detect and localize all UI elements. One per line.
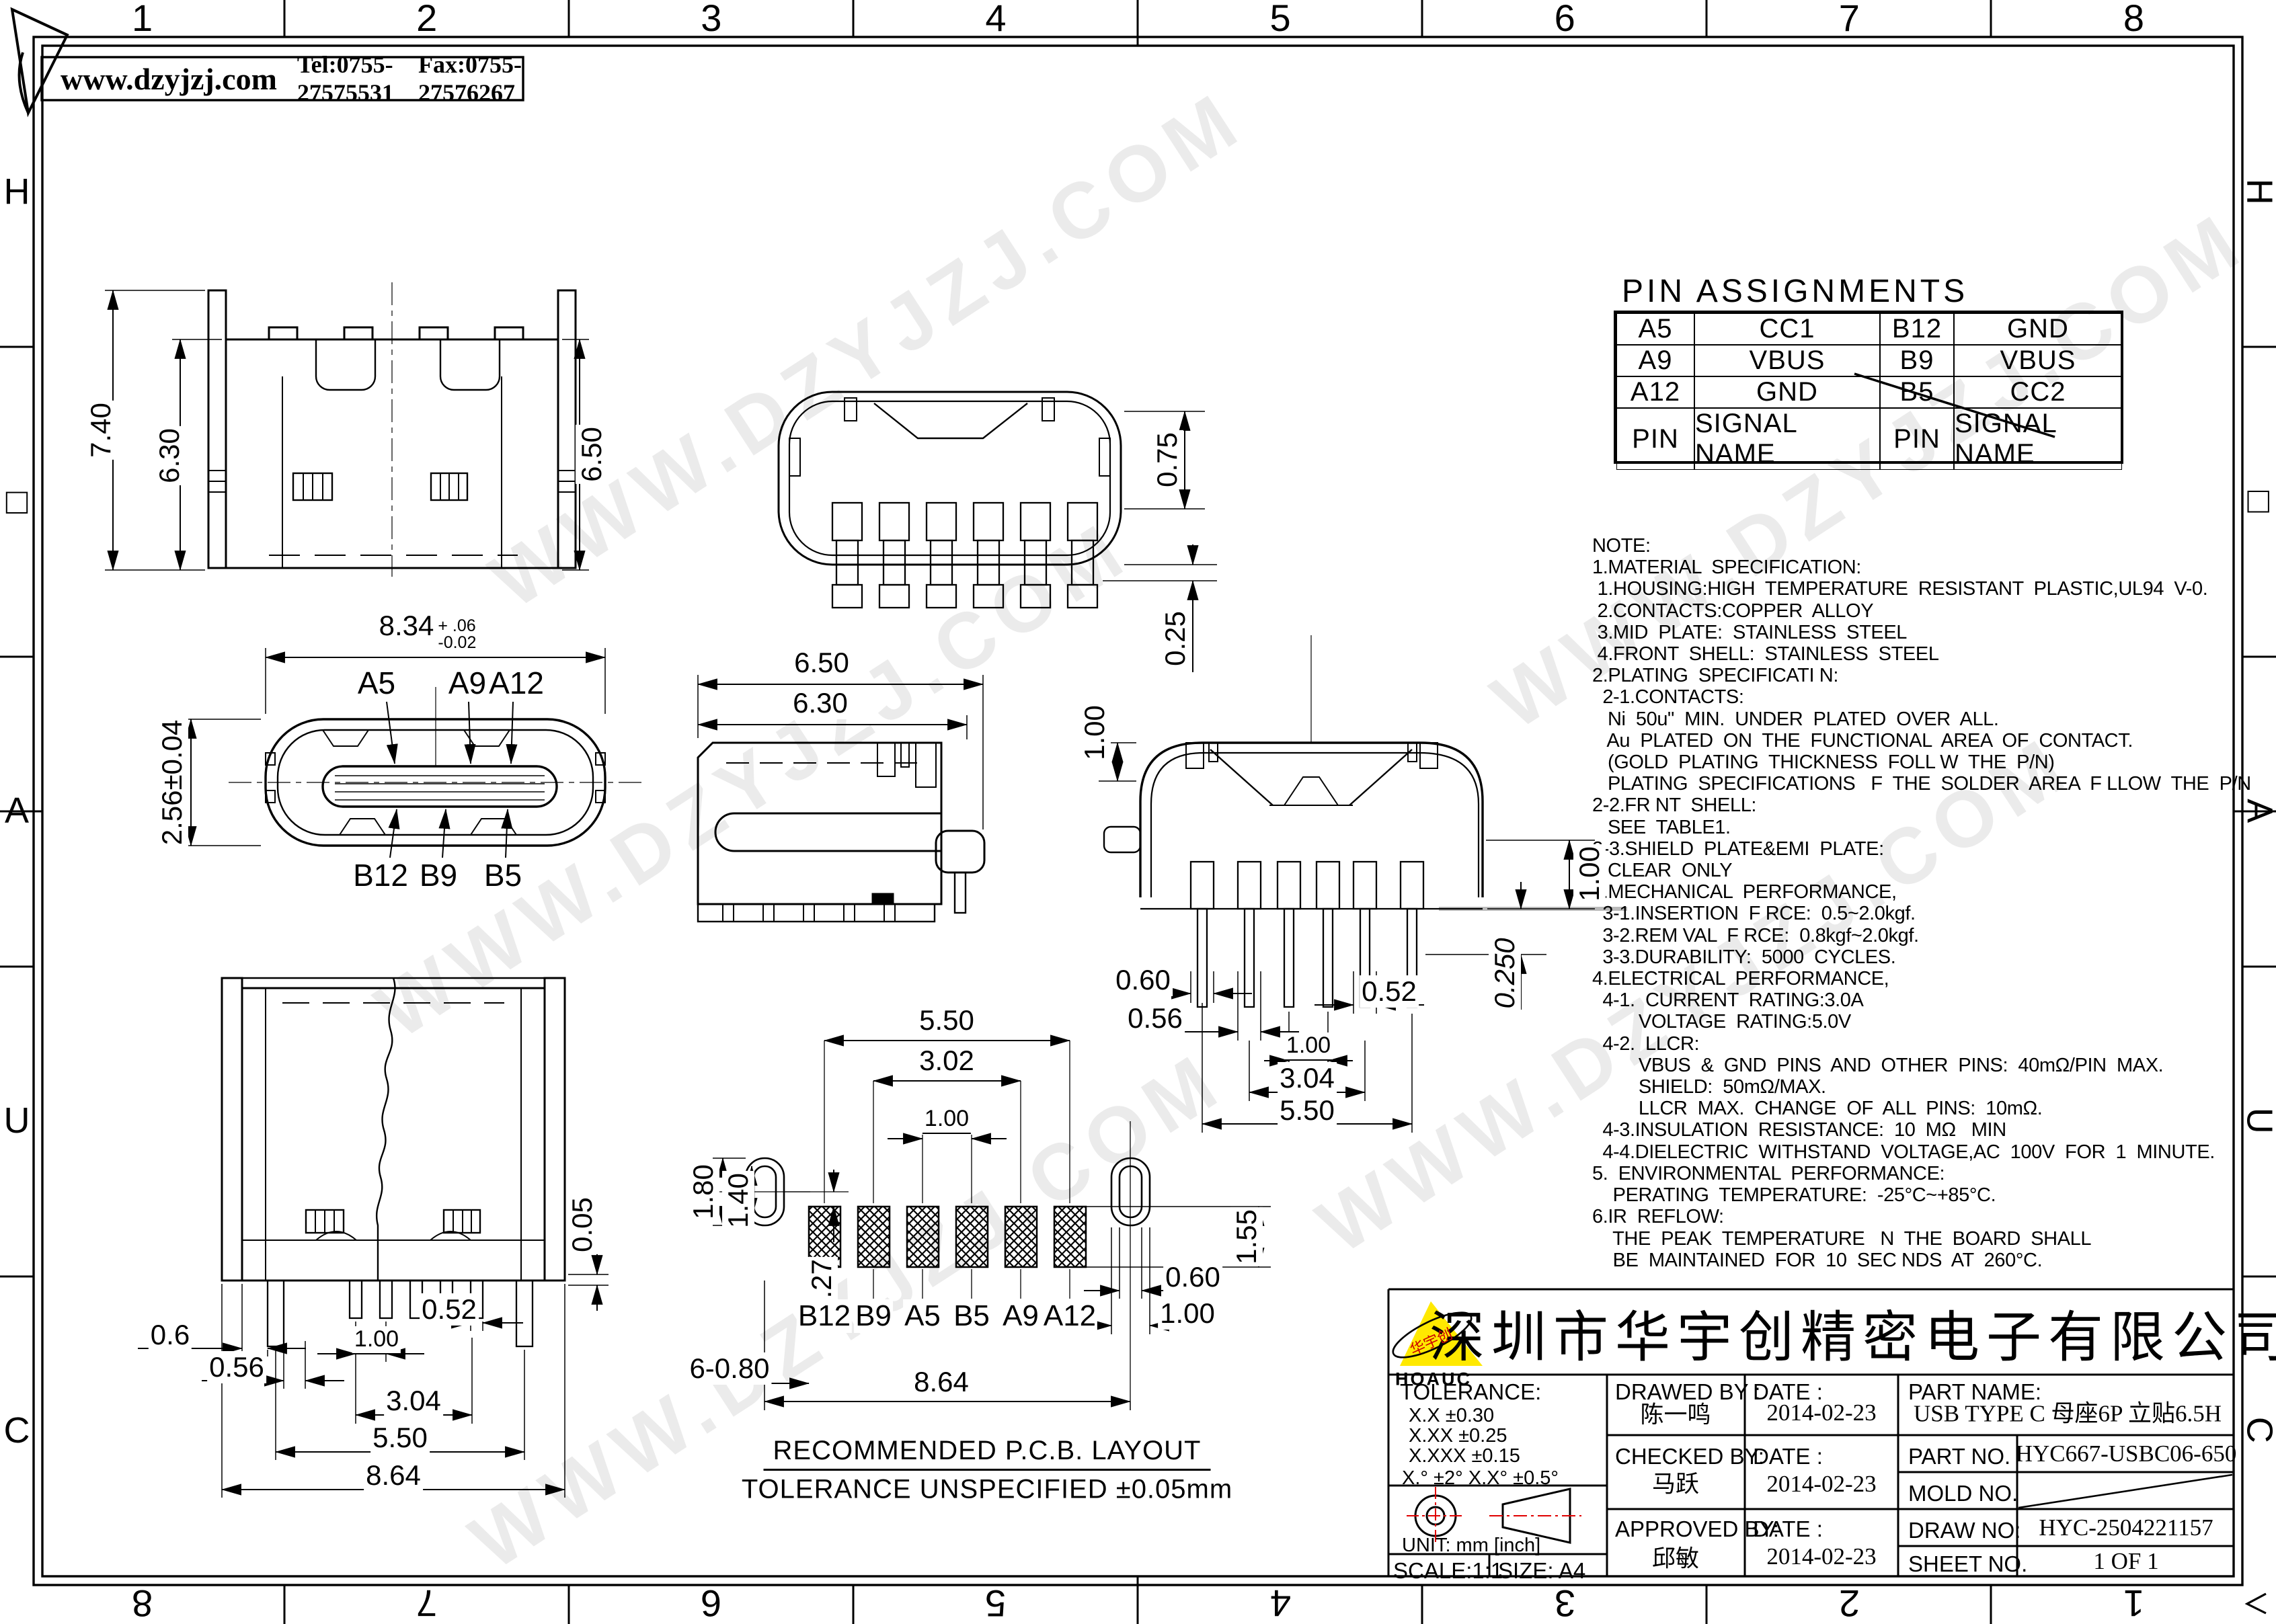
note-line: 1.HOUSING:HIGH TEMPERATURE RESISTANT PLA…	[1592, 578, 2251, 600]
pin-label-a9: A9	[448, 665, 486, 701]
zone-letter: A	[0, 656, 34, 966]
tolerance-label: TOLERANCE:	[1400, 1379, 1541, 1405]
pin-label-b12: B12	[353, 857, 408, 893]
tolerance-angles: X.° ±2° X.X° ±0.5°	[1402, 1467, 1559, 1490]
pin-table-cell: B5	[1880, 376, 1954, 408]
rear-view-drawing	[1099, 635, 1627, 1133]
pin-label-a12: A12	[489, 665, 544, 701]
note-line: 2.CONTACTS:COPPER ALLOY	[1592, 600, 2251, 622]
note-line: SHIELD: 50mΩ/MAX.	[1592, 1076, 2251, 1098]
dim-rear-0-60: 0.60	[1113, 964, 1173, 996]
dim-side-6-30: 6.30	[791, 687, 850, 719]
note-line: PLATING SPECIFICATIONS F THE SOLDER AREA…	[1592, 773, 2251, 795]
checked-date: 2014-02-23	[1766, 1471, 1876, 1498]
pin-table-cell: A9	[1616, 345, 1694, 376]
size-label: SIZE: A4	[1498, 1558, 1585, 1584]
ruler-number: 4	[1138, 1586, 1423, 1621]
dim-6-30: 6.30	[153, 426, 186, 485]
website: www.dzyjzj.com	[61, 61, 277, 97]
note-line: 5. ENVIRONMENTAL PERFORMANCE:	[1592, 1163, 2251, 1184]
ruler-top: 12345678	[0, 0, 2276, 35]
dim-relev-0-6: 0.6	[149, 1319, 192, 1351]
note-line: 4.FRONT SHELL: STAINLESS STEEL	[1592, 643, 2251, 665]
pin-assignments-table: A5CC1B12GNDA9VBUSB9VBUSA12GNDB5CC2PINSIG…	[1614, 311, 2123, 464]
note-line: 4-2. LLCR:	[1592, 1033, 2251, 1055]
note-line: Ni 50u" MIN. UNDER PLATED OVER ALL.	[1592, 708, 2251, 730]
dim-rear-0-52: 0.52	[1360, 975, 1419, 1008]
ruler-number: 2	[284, 0, 569, 35]
note-line: BE MAINTAINED FOR 10 SEC NDS AT 260°C.	[1592, 1250, 2251, 1271]
part-no-label: PART NO.	[1908, 1444, 2010, 1469]
zone-letter: H	[2105, 175, 2276, 208]
pcb-caption-tolerance: TOLERANCE UNSPECIFIED ±0.05mm	[742, 1475, 1232, 1505]
dim-6-50: 6.50	[576, 425, 608, 484]
zone-letter: □	[0, 347, 34, 657]
pin-table-row: PINSIGNAL NAMEPINSIGNAL NAME	[1616, 408, 2122, 470]
dim-pcb-1-00b: 1.00	[1158, 1297, 1217, 1330]
pin-label-b5: B5	[484, 857, 522, 893]
note-line: 2-2.FR NT SHELL:	[1592, 795, 2251, 816]
dim-relev-0-56: 0.56	[207, 1351, 266, 1383]
header-contact-bar: www.dzyjzj.com Tel:0755-27575531 Fax:075…	[42, 57, 523, 100]
pin-label-a5: A5	[358, 665, 395, 701]
pin-table-cell: PIN	[1880, 408, 1954, 470]
pin-table-cell: B12	[1880, 313, 1954, 345]
scale-label: SCALE:1:1	[1393, 1558, 1503, 1584]
note-line: 2-1.CONTACTS:	[1592, 686, 2251, 708]
drawed-by-name: 陈一鸣	[1640, 1396, 1711, 1430]
draw-no-label: DRAW NO:	[1908, 1518, 2020, 1543]
dim-relev-1-00: 1.00	[352, 1326, 401, 1354]
note-line: VBUS & GND PINS AND OTHER PINS: 40mΩ/PIN…	[1592, 1055, 2251, 1076]
ruler-number: 7	[284, 1586, 569, 1621]
pad-label-b5: B5	[952, 1299, 991, 1333]
notes-block: NOTE:1.MATERIAL SPECIFICATION: 1.HOUSING…	[1592, 535, 2251, 1271]
ruler-number: 3	[569, 0, 853, 35]
ruler-left: H□AUC	[0, 37, 34, 1585]
ruler-number: 1	[1992, 1586, 2276, 1621]
dim-rear-0-56: 0.56	[1126, 1002, 1185, 1034]
note-line: PERATING TEMPERATURE: -25°C~+85°C.	[1592, 1184, 2251, 1206]
dim-pcb-3-02: 3.02	[917, 1045, 976, 1077]
dim-rear-1-00-top: 1.00	[1078, 703, 1111, 762]
face-view-drawing	[182, 648, 642, 858]
note-line: NOTE:	[1592, 535, 2251, 557]
dim-2-56: 2.56±0.04	[156, 718, 188, 848]
unit-label: UNIT: mm [inch]	[1402, 1535, 1540, 1557]
dim-pcb-1-40: 1.40	[722, 1171, 754, 1230]
pad-label-a9: A9	[1001, 1299, 1040, 1333]
ruler-number: 1	[0, 0, 284, 35]
checked-by-name: 马跃	[1652, 1465, 1699, 1500]
pad-label-a5: A5	[903, 1299, 942, 1333]
mold-no-label: MOLD NO.	[1908, 1481, 2018, 1506]
note-line: 4.ELECTRICAL PERFORMANCE,	[1592, 968, 2251, 989]
zone-letter: C	[0, 1275, 34, 1585]
pin-table-cell: SIGNAL NAME	[1694, 408, 1880, 470]
pin-table-cell: VBUS	[1954, 345, 2122, 376]
note-line: 2-3.SHIELD PLATE&EMI PLATE:	[1592, 838, 2251, 860]
pin-assignments-title: PIN ASSIGNMENTS	[1622, 273, 1968, 310]
dim-pcb-8-64: 8.64	[912, 1366, 971, 1398]
pin-table-cell: GND	[1694, 376, 1880, 408]
zone-letter: U	[0, 966, 34, 1276]
dim-pcb-1-00: 1.00	[923, 1106, 971, 1134]
dim-rear-3-04: 3.04	[1278, 1062, 1337, 1094]
sheet-no-value: 1 OF 1	[2093, 1548, 2158, 1575]
phone: Tel:0755-27575531	[297, 50, 398, 107]
dim-rear-5-50: 5.50	[1278, 1094, 1337, 1127]
note-line: CLEAR ONLY	[1592, 860, 2251, 881]
note-line: 1.MATERIAL SPECIFICATION:	[1592, 557, 2251, 578]
rear-elevation-drawing	[138, 978, 609, 1498]
dim-pcb-5-50: 5.50	[917, 1004, 976, 1037]
tolerance-row3: X.XXX ±0.15	[1409, 1445, 1520, 1467]
note-line: LLCR MAX. CHANGE OF ALL PINS: 10mΩ.	[1592, 1098, 2251, 1119]
note-line: 4-3.INSULATION RESISTANCE: 10 MΩ MIN	[1592, 1119, 2251, 1141]
pin-table-cell: GND	[1954, 313, 2122, 345]
part-no-value: HYC667-USBC06-650	[2016, 1440, 2237, 1467]
dim-relev-0-05: 0.05	[566, 1195, 598, 1254]
dim-relev-0-52: 0.52	[420, 1293, 479, 1326]
dim-0-25: 0.25	[1159, 609, 1191, 668]
pin-table-row: A9VBUSB9VBUS	[1616, 345, 2122, 376]
dim-relev-8-64: 8.64	[364, 1459, 423, 1492]
pad-label-b12: B12	[797, 1299, 852, 1333]
ruler-number: 3	[1423, 1586, 1707, 1621]
pin-table-cell: VBUS	[1694, 345, 1880, 376]
part-name-value: USB TYPE C 母座6P 立贴6.5H	[1914, 1395, 2222, 1429]
pin-table-cell: B9	[1880, 345, 1954, 376]
dim-rear-1-00-right: 1.00	[1573, 844, 1606, 903]
ruler-number: 7	[1707, 0, 1992, 35]
pin-table-cell: SIGNAL NAME	[1954, 408, 2122, 470]
ruler-number: 5	[1138, 0, 1423, 35]
note-line: (GOLD PLATING THICKNESS FOLL W THE P/N)	[1592, 752, 2251, 773]
pin-table-cell: CC1	[1694, 313, 1880, 345]
approved-by-name: 邱敏	[1652, 1540, 1699, 1574]
note-line: 2.PLATING SPECIFICATI N:	[1592, 665, 2251, 686]
note-line: 3-1.INSERTION F RCE: 0.5~2.0kgf.	[1592, 903, 2251, 924]
pin-table-cell: CC2	[1954, 376, 2122, 408]
ruler-bottom: 87654321	[0, 1586, 2276, 1621]
ruler-number: 8	[1992, 0, 2276, 35]
note-line: 3.MECHANICAL PERFORMANCE,	[1592, 881, 2251, 903]
pcb-layout-drawing	[699, 1041, 1271, 1410]
dim-7-40: 7.40	[85, 401, 117, 460]
ruler-number: 4	[853, 0, 1138, 35]
ruler-number: 6	[569, 1586, 853, 1621]
sheet-no-label: SHEET NO.	[1908, 1551, 2027, 1577]
zone-letter: H	[0, 37, 34, 347]
tolerance-row2: X.XX ±0.25	[1409, 1425, 1507, 1447]
pin-table-cell: A12	[1616, 376, 1694, 408]
dim-pcb-0-60: 0.60	[1163, 1261, 1222, 1293]
ruler-number: 8	[0, 1586, 284, 1621]
dim-pcb-1-80: 1.80	[687, 1162, 719, 1221]
dim-side-6-50: 6.50	[792, 647, 851, 679]
ruler-number: 6	[1423, 0, 1707, 35]
note-line: THE PEAK TEMPERATURE N THE BOARD SHALL	[1592, 1228, 2251, 1250]
note-line: 4-1. CURRENT RATING:3.0A	[1592, 989, 2251, 1011]
fax: Fax:0755-27576267	[418, 50, 523, 107]
approved-date: 2014-02-23	[1766, 1543, 1876, 1570]
dim-relev-5-50: 5.50	[370, 1422, 430, 1454]
pin-label-b9: B9	[420, 857, 457, 893]
pin-table-row: A12GNDB5CC2	[1616, 376, 2122, 408]
note-line: 3-3.DURABILITY: 5000 CYCLES.	[1592, 946, 2251, 968]
pin-table-cell: PIN	[1616, 408, 1694, 470]
note-line: 3.MID PLATE: STAINLESS STEEL	[1592, 622, 2251, 643]
date-label-2: DATE :	[1753, 1444, 1823, 1469]
tolerance-row1: X.X ±0.30	[1409, 1405, 1494, 1427]
zone-letter: □	[2105, 485, 2276, 518]
date-label-3: DATE :	[1753, 1516, 1823, 1542]
dim-rear-1-00-pitch: 1.00	[1284, 1032, 1333, 1061]
pad-label-a12: A12	[1042, 1299, 1097, 1333]
pin-table-row: A5CC1B12GND	[1616, 313, 2122, 345]
dim-relev-3-04: 3.04	[384, 1385, 443, 1417]
ruler-number: 2	[1707, 1586, 1992, 1621]
drawed-date: 2014-02-23	[1766, 1399, 1876, 1426]
note-line: 6.IR REFLOW:	[1592, 1206, 2251, 1227]
dim-rear-0-250: 0.250	[1489, 936, 1521, 1010]
company-name: 深圳市华宇创精密电子有限公司	[1429, 1293, 2276, 1373]
note-line: SEE TABLE1.	[1592, 817, 2251, 838]
note-line: VOLTAGE RATING:5.0V	[1592, 1011, 2251, 1032]
drawing-sheet: WWW.DZYJZJ.COM WWW.DZYJZJ.COM WWW.DZYJZJ…	[0, 0, 2276, 1624]
draw-no-value: HYC-2504221157	[2039, 1514, 2213, 1541]
note-line: Au PLATED ON THE FUNCTIONAL AREA OF CONT…	[1592, 730, 2251, 752]
pad-label-b9: B9	[854, 1299, 893, 1333]
note-line: 3-2.REM VAL F RCE: 0.8kgf~2.0kgf.	[1592, 925, 2251, 946]
dim-8-34: 8.34+ .06-0.02	[377, 610, 479, 651]
dim-pcb-1-55: 1.55	[1230, 1207, 1263, 1266]
dim-0-75: 0.75	[1151, 430, 1183, 489]
dim-pcb-6-0-80: 6-0.80	[687, 1352, 771, 1385]
ruler-number: 5	[853, 1586, 1138, 1621]
pcb-caption-title: RECOMMENDED P.C.B. LAYOUT	[764, 1436, 1211, 1471]
note-line: 4-4.DIELECTRIC WITHSTAND VOLTAGE,AC 100V…	[1592, 1141, 2251, 1163]
pin-table-cell: A5	[1616, 313, 1694, 345]
